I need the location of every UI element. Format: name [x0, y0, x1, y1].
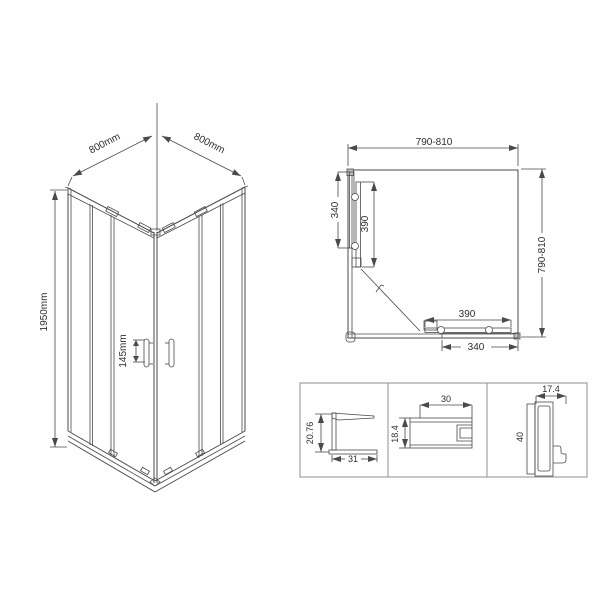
rail-profile-height-label: 18.4 — [390, 425, 400, 443]
plan-width-dimension: 790-810 — [348, 137, 518, 166]
plan-depth-label: 790-810 — [537, 236, 548, 273]
bottom-roller-2 — [486, 327, 493, 334]
plan-left-fixed-label: 340 — [330, 201, 341, 218]
plan-bottom-side — [424, 321, 518, 338]
bottom-roller-1 — [438, 327, 445, 334]
frame-profile-width-label: 17.4 — [542, 384, 560, 394]
plan-entry-corner — [346, 332, 355, 342]
handle-spacing-label: 145mm — [118, 334, 129, 367]
plan-left-fixed-dimension: 340 — [330, 172, 352, 248]
plan-left-door-dimension: 390 — [360, 182, 374, 267]
plan-bottom-door-dimension: 390 — [425, 309, 511, 327]
left-door-handle — [144, 339, 149, 367]
rail-profile-width-label: 30 — [441, 394, 451, 404]
iso-width-dimensions: 800mm 800mm — [68, 131, 245, 186]
rail-profile-detail: 30 18.4 — [390, 394, 472, 448]
profile-details: 20.76 31 30 1 — [300, 383, 587, 477]
iso-height-label: 1950mm — [39, 293, 50, 332]
wall-profile-height-label: 20.76 — [305, 422, 315, 445]
left-roller-2 — [352, 243, 359, 250]
wall-profile-width-label: 31 — [348, 454, 358, 464]
frame-profile-detail: 17.4 40 — [515, 384, 566, 476]
handle-dimension: 145mm — [118, 334, 145, 367]
plan-left-door-label: 390 — [360, 215, 371, 232]
iso-height-dimension: 1950mm — [39, 190, 67, 447]
plan-depth-dimension: 790-810 — [521, 169, 548, 337]
plan-width-label: 790-810 — [416, 137, 453, 148]
left-door-guide — [352, 258, 361, 267]
bottom-door-guide — [424, 321, 437, 330]
plan-bottom-fixed-label: 340 — [468, 342, 485, 353]
door-handles — [144, 339, 174, 367]
left-roller-1 — [352, 194, 359, 201]
iso-width-right-label: 800mm — [192, 131, 227, 156]
plan-opening-diagonal — [361, 269, 420, 331]
right-door-handle — [169, 339, 174, 367]
iso-width-left-label: 800mm — [88, 131, 123, 156]
technical-drawing-page: 800mm 800mm 1950mm — [0, 0, 600, 600]
plan-outline — [348, 170, 518, 338]
iso-view: 800mm 800mm 1950mm — [39, 103, 248, 492]
frame-profile-height-label: 40 — [515, 432, 525, 442]
plan-bottom-fixed-dimension: 340 — [442, 340, 518, 353]
plan-view: 790-810 790-810 340 — [330, 137, 548, 353]
plan-bottom-door-label: 390 — [459, 309, 476, 320]
shower-enclosure-drawing: 800mm 800mm 1950mm — [0, 0, 600, 600]
wall-profile-detail: 20.76 31 — [305, 413, 377, 464]
